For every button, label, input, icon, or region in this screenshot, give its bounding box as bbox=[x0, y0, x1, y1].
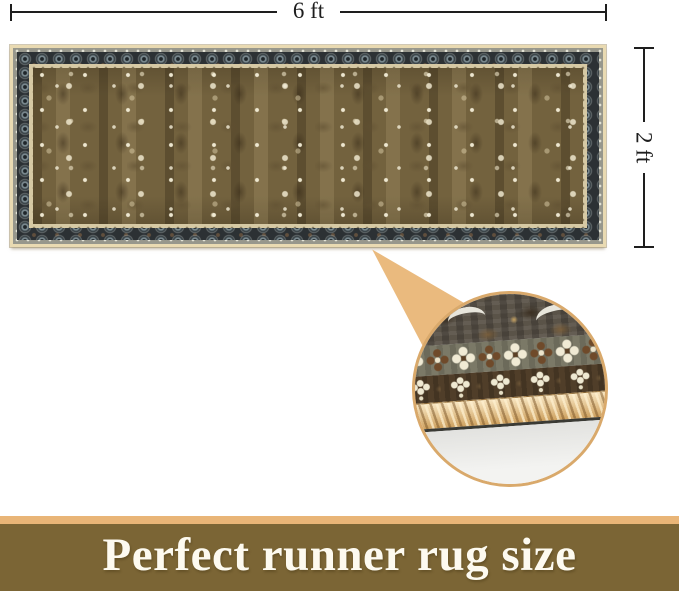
banner-accent-strip bbox=[0, 516, 679, 524]
height-dimension-label: 2 ft bbox=[633, 122, 656, 173]
rug-outer-border bbox=[13, 48, 603, 244]
magnified-rug-edge bbox=[412, 291, 608, 487]
dimension-line-segment bbox=[340, 11, 605, 13]
height-dimension: 2 ft bbox=[633, 47, 655, 248]
product-size-graphic: 6 ft 2 ft bbox=[0, 0, 679, 597]
dimension-cap-bottom bbox=[634, 246, 654, 248]
swoosh-motif bbox=[534, 301, 577, 333]
banner-band: Perfect runner rug size bbox=[0, 524, 679, 591]
width-dimension-label: 6 ft bbox=[277, 0, 340, 22]
caption-banner: Perfect runner rug size bbox=[0, 516, 679, 591]
rug-field-pattern bbox=[33, 68, 583, 224]
dimension-tick-right bbox=[605, 4, 607, 21]
dimension-line-segment bbox=[643, 49, 645, 122]
dimension-line-segment bbox=[12, 11, 277, 13]
width-dimension: 6 ft bbox=[10, 2, 607, 22]
rug-inner-border bbox=[29, 64, 587, 228]
rug-dark-ornate-border bbox=[17, 52, 599, 240]
banner-title: Perfect runner rug size bbox=[103, 532, 577, 579]
rug-photo bbox=[10, 45, 606, 247]
swoosh-motif bbox=[446, 304, 488, 334]
dimension-line-segment bbox=[643, 173, 645, 246]
zoom-detail-circle bbox=[412, 291, 608, 487]
